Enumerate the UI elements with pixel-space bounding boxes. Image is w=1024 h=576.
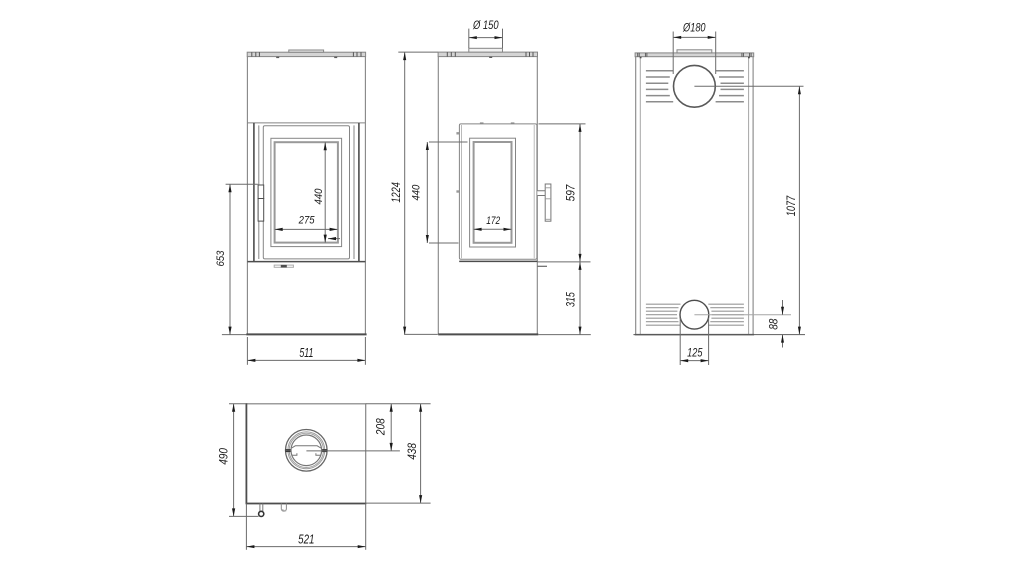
- svg-text:440: 440: [313, 188, 325, 204]
- svg-text:511: 511: [299, 345, 313, 360]
- svg-text:490: 490: [217, 448, 231, 465]
- svg-text:440: 440: [411, 184, 423, 200]
- svg-text:521: 521: [298, 531, 314, 546]
- svg-text:208: 208: [374, 418, 388, 436]
- svg-text:172: 172: [486, 215, 501, 227]
- svg-text:275: 275: [298, 215, 315, 227]
- svg-text:597: 597: [564, 183, 578, 201]
- svg-text:Ø180: Ø180: [682, 21, 705, 35]
- svg-text:315: 315: [564, 292, 578, 307]
- svg-text:88: 88: [767, 318, 781, 329]
- svg-text:125: 125: [687, 345, 702, 359]
- svg-text:Ø 150: Ø 150: [472, 18, 498, 32]
- svg-text:438: 438: [405, 443, 419, 460]
- svg-text:653: 653: [215, 250, 227, 266]
- svg-text:1077: 1077: [784, 195, 798, 216]
- svg-text:1224: 1224: [389, 182, 403, 203]
